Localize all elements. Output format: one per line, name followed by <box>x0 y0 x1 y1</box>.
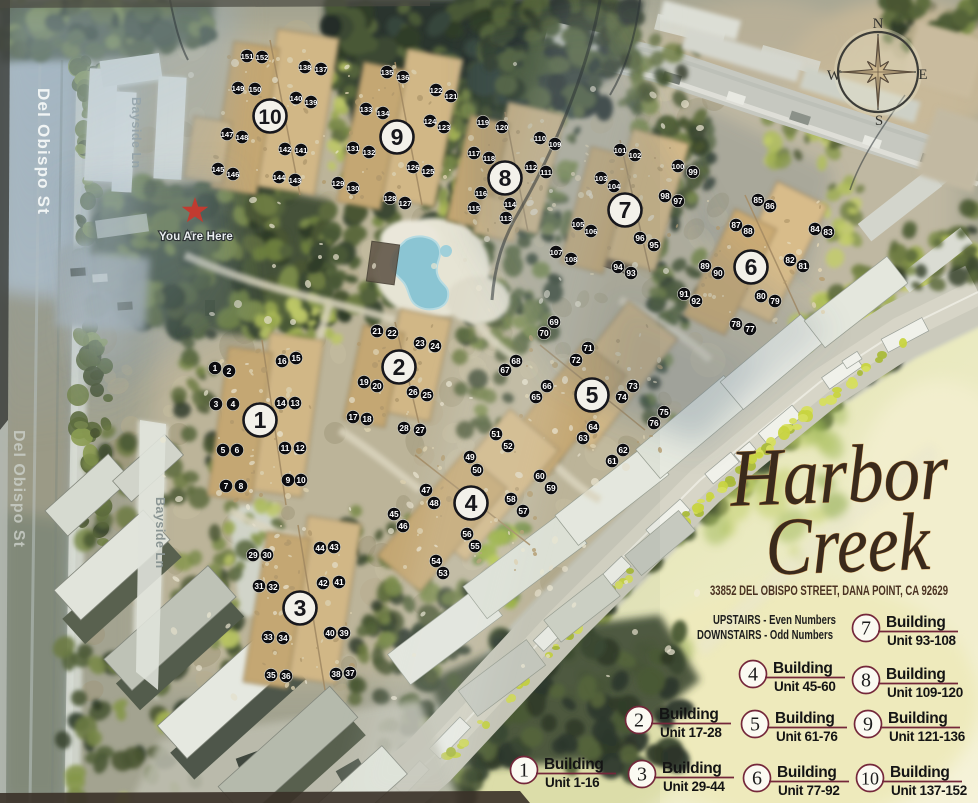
svg-text:10: 10 <box>296 475 306 485</box>
svg-text:Unit 1-16: Unit 1-16 <box>545 775 600 790</box>
svg-text:32: 32 <box>268 582 278 592</box>
svg-text:2: 2 <box>393 354 406 380</box>
svg-text:110: 110 <box>534 134 546 143</box>
svg-text:8: 8 <box>499 165 512 191</box>
svg-text:138: 138 <box>299 63 312 72</box>
svg-text:87: 87 <box>731 220 741 230</box>
svg-text:71: 71 <box>583 343 593 353</box>
svg-text:9: 9 <box>286 475 291 485</box>
svg-text:145: 145 <box>212 165 225 174</box>
svg-text:97: 97 <box>673 196 683 206</box>
svg-text:57: 57 <box>518 506 528 516</box>
svg-text:27: 27 <box>415 425 425 435</box>
svg-text:65: 65 <box>531 392 541 402</box>
svg-text:137: 137 <box>315 65 328 74</box>
svg-text:S: S <box>875 113 883 129</box>
svg-text:109: 109 <box>549 140 562 149</box>
svg-text:51: 51 <box>491 429 501 439</box>
svg-text:Building: Building <box>888 710 948 727</box>
svg-text:Building: Building <box>662 760 722 777</box>
svg-text:58: 58 <box>506 494 516 504</box>
svg-text:3: 3 <box>214 399 219 409</box>
svg-text:79: 79 <box>770 296 780 306</box>
svg-text:117: 117 <box>468 149 480 158</box>
svg-text:106: 106 <box>585 227 598 236</box>
svg-text:12: 12 <box>295 443 305 453</box>
svg-text:Unit 77-92: Unit 77-92 <box>778 783 840 798</box>
svg-text:126: 126 <box>407 163 420 172</box>
svg-text:134: 134 <box>377 109 390 118</box>
svg-text:9: 9 <box>863 714 873 736</box>
svg-text:142: 142 <box>279 145 292 154</box>
svg-text:46: 46 <box>398 521 408 531</box>
svg-text:55: 55 <box>470 541 480 551</box>
svg-text:140: 140 <box>290 94 303 103</box>
svg-text:35: 35 <box>266 670 276 680</box>
svg-text:Unit 121-136: Unit 121-136 <box>889 729 966 744</box>
svg-text:125: 125 <box>422 167 435 176</box>
svg-text:64: 64 <box>588 422 598 432</box>
svg-text:54: 54 <box>431 556 441 566</box>
svg-text:131: 131 <box>347 144 360 153</box>
svg-text:29: 29 <box>248 550 258 560</box>
svg-text:81: 81 <box>798 261 808 271</box>
svg-text:W: W <box>827 68 842 84</box>
svg-text:66: 66 <box>542 381 552 391</box>
svg-text:5: 5 <box>586 382 599 408</box>
svg-text:63: 63 <box>578 433 588 443</box>
svg-text:36: 36 <box>281 671 291 681</box>
svg-text:Building: Building <box>544 756 604 773</box>
svg-text:1: 1 <box>213 363 218 373</box>
svg-text:Building: Building <box>773 660 833 677</box>
svg-text:147: 147 <box>221 130 234 139</box>
svg-text:33852 DEL OBISPO STREET, DANA: 33852 DEL OBISPO STREET, DANA POINT, CA … <box>710 583 948 598</box>
svg-text:133: 133 <box>360 105 373 114</box>
svg-text:100: 100 <box>672 162 685 171</box>
svg-text:1: 1 <box>254 407 267 433</box>
svg-text:3: 3 <box>637 764 647 786</box>
svg-text:90: 90 <box>713 268 723 278</box>
svg-text:Creek: Creek <box>764 496 932 593</box>
svg-text:31: 31 <box>254 581 264 591</box>
svg-text:68: 68 <box>511 356 521 366</box>
svg-text:10: 10 <box>258 106 281 129</box>
svg-text:43: 43 <box>329 542 339 552</box>
svg-text:15: 15 <box>291 353 301 363</box>
svg-text:136: 136 <box>397 73 410 82</box>
svg-text:20: 20 <box>372 381 382 391</box>
svg-text:89: 89 <box>700 261 710 271</box>
svg-text:5: 5 <box>750 714 760 736</box>
svg-text:9: 9 <box>391 124 404 150</box>
svg-text:49: 49 <box>465 452 475 462</box>
svg-text:24: 24 <box>430 341 440 351</box>
svg-text:19: 19 <box>359 377 369 387</box>
svg-text:48: 48 <box>429 498 439 508</box>
svg-text:69: 69 <box>549 317 559 327</box>
svg-text:67: 67 <box>500 365 510 375</box>
svg-text:70: 70 <box>539 328 549 338</box>
svg-text:Building: Building <box>890 764 950 781</box>
svg-text:N: N <box>873 16 884 32</box>
svg-text:91: 91 <box>679 289 689 299</box>
svg-text:17: 17 <box>348 412 358 422</box>
svg-text:82: 82 <box>785 255 795 265</box>
svg-text:Building: Building <box>775 710 835 727</box>
svg-text:Del Obispo St: Del Obispo St <box>10 430 27 548</box>
svg-text:59: 59 <box>546 483 556 493</box>
svg-text:122: 122 <box>430 86 443 95</box>
svg-text:14: 14 <box>276 398 286 408</box>
svg-text:112: 112 <box>525 163 537 172</box>
svg-text:37: 37 <box>345 668 355 678</box>
svg-text:94: 94 <box>613 262 623 272</box>
svg-text:149: 149 <box>232 84 245 93</box>
svg-text:6: 6 <box>745 254 758 280</box>
svg-text:4: 4 <box>465 490 478 516</box>
svg-text:25: 25 <box>422 390 432 400</box>
svg-text:61: 61 <box>607 456 617 466</box>
svg-text:111: 111 <box>540 168 553 177</box>
svg-text:127: 127 <box>399 199 412 208</box>
svg-text:6: 6 <box>752 768 762 790</box>
svg-text:40: 40 <box>325 628 335 638</box>
svg-text:Unit 93-108: Unit 93-108 <box>887 633 957 648</box>
svg-text:77: 77 <box>745 324 755 334</box>
svg-text:33: 33 <box>263 632 273 642</box>
svg-text:50: 50 <box>472 465 482 475</box>
svg-text:44: 44 <box>315 543 325 553</box>
svg-text:41: 41 <box>334 577 344 587</box>
svg-text:42: 42 <box>318 578 328 588</box>
svg-text:103: 103 <box>595 174 608 183</box>
svg-text:UPSTAIRS - Even Numbers: UPSTAIRS - Even Numbers <box>713 613 836 627</box>
svg-text:150: 150 <box>249 85 262 94</box>
svg-text:7: 7 <box>619 197 632 223</box>
svg-text:21: 21 <box>372 326 382 336</box>
svg-text:Unit 17-28: Unit 17-28 <box>660 725 722 740</box>
svg-text:Building: Building <box>659 706 719 723</box>
svg-text:119: 119 <box>477 118 489 127</box>
svg-text:22: 22 <box>387 328 397 338</box>
svg-text:102: 102 <box>629 151 642 160</box>
svg-text:120: 120 <box>496 123 509 132</box>
svg-text:132: 132 <box>363 148 376 157</box>
svg-text:Del Obispo St: Del Obispo St <box>34 88 53 215</box>
svg-text:Building: Building <box>886 614 946 631</box>
svg-text:30: 30 <box>262 550 272 560</box>
svg-text:148: 148 <box>236 133 249 142</box>
svg-text:56: 56 <box>462 529 472 539</box>
svg-text:45: 45 <box>389 509 399 519</box>
svg-text:86: 86 <box>765 201 775 211</box>
svg-text:5: 5 <box>221 445 226 455</box>
svg-text:60: 60 <box>535 471 545 481</box>
svg-text:Unit 29-44: Unit 29-44 <box>663 779 725 794</box>
svg-text:108: 108 <box>565 255 578 264</box>
svg-text:128: 128 <box>384 194 397 203</box>
svg-text:114: 114 <box>504 200 517 209</box>
svg-text:Unit 109-120: Unit 109-120 <box>887 685 963 700</box>
svg-text:113: 113 <box>500 214 512 223</box>
svg-text:88: 88 <box>743 226 753 236</box>
svg-text:75: 75 <box>659 407 669 417</box>
svg-text:151: 151 <box>241 52 254 61</box>
svg-text:1: 1 <box>519 760 529 782</box>
svg-text:144: 144 <box>273 173 286 182</box>
svg-text:3: 3 <box>294 595 307 621</box>
svg-text:84: 84 <box>810 224 820 234</box>
svg-text:105: 105 <box>572 220 585 229</box>
svg-text:6: 6 <box>235 445 240 455</box>
svg-text:115: 115 <box>468 204 481 213</box>
svg-text:152: 152 <box>256 53 269 62</box>
svg-text:2: 2 <box>227 366 232 376</box>
svg-text:4: 4 <box>748 664 758 686</box>
svg-text:76: 76 <box>649 418 659 428</box>
svg-text:80: 80 <box>756 291 766 301</box>
svg-text:52: 52 <box>503 441 513 451</box>
svg-text:107: 107 <box>550 248 563 257</box>
svg-text:8: 8 <box>861 670 871 692</box>
svg-text:You Are Here: You Are Here <box>159 231 233 243</box>
svg-text:116: 116 <box>475 189 487 198</box>
svg-text:28: 28 <box>399 423 409 433</box>
svg-text:118: 118 <box>483 154 495 163</box>
svg-text:38: 38 <box>331 669 341 679</box>
svg-text:83: 83 <box>823 227 833 237</box>
svg-text:4: 4 <box>231 399 236 409</box>
svg-text:39: 39 <box>339 628 349 638</box>
svg-text:129: 129 <box>332 179 345 188</box>
svg-text:135: 135 <box>381 68 394 77</box>
svg-text:95: 95 <box>649 240 659 250</box>
svg-text:92: 92 <box>691 296 701 306</box>
svg-text:26: 26 <box>408 387 418 397</box>
svg-text:96: 96 <box>635 233 645 243</box>
svg-text:7: 7 <box>861 618 871 640</box>
svg-text:7: 7 <box>224 481 229 491</box>
svg-text:Unit 137-152: Unit 137-152 <box>891 783 967 798</box>
svg-text:101: 101 <box>614 146 627 155</box>
svg-text:8: 8 <box>239 481 244 491</box>
svg-text:Building: Building <box>777 764 837 781</box>
svg-text:47: 47 <box>421 485 431 495</box>
svg-text:98: 98 <box>660 191 670 201</box>
svg-text:124: 124 <box>424 117 437 126</box>
svg-text:10: 10 <box>861 769 879 789</box>
svg-text:53: 53 <box>438 568 448 578</box>
svg-text:Building: Building <box>886 666 946 683</box>
svg-text:85: 85 <box>753 195 763 205</box>
svg-text:99: 99 <box>688 167 698 177</box>
svg-text:72: 72 <box>571 355 581 365</box>
svg-text:Unit 61-76: Unit 61-76 <box>776 729 838 744</box>
svg-text:23: 23 <box>415 338 425 348</box>
svg-text:123: 123 <box>438 123 451 132</box>
svg-text:141: 141 <box>295 146 308 155</box>
svg-text:143: 143 <box>289 176 302 185</box>
svg-text:E: E <box>918 67 927 83</box>
svg-text:93: 93 <box>626 268 636 278</box>
svg-text:130: 130 <box>347 184 360 193</box>
svg-text:139: 139 <box>305 98 318 107</box>
svg-text:34: 34 <box>278 633 288 643</box>
svg-text:11: 11 <box>281 443 290 453</box>
svg-text:78: 78 <box>731 319 741 329</box>
svg-text:146: 146 <box>227 170 240 179</box>
svg-text:74: 74 <box>617 392 627 402</box>
svg-text:16: 16 <box>277 356 287 366</box>
svg-text:13: 13 <box>290 398 300 408</box>
svg-text:Unit 45-60: Unit 45-60 <box>774 679 836 694</box>
svg-text:DOWNSTAIRS - Odd Numbers: DOWNSTAIRS - Odd Numbers <box>697 628 833 642</box>
svg-text:73: 73 <box>628 381 638 391</box>
svg-text:121: 121 <box>445 92 458 101</box>
svg-text:2: 2 <box>634 710 644 732</box>
svg-text:104: 104 <box>608 182 621 191</box>
svg-text:18: 18 <box>362 414 372 424</box>
svg-text:62: 62 <box>618 445 628 455</box>
